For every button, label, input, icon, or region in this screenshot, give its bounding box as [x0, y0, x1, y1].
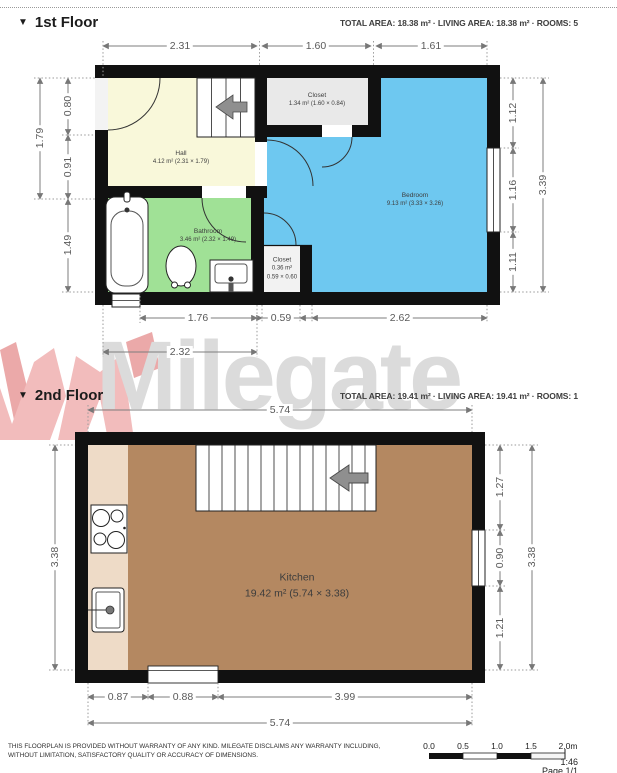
dim-label: 2.62 — [387, 312, 413, 324]
floor1-stats: TOTAL AREA: 18.38 m² · LIVING AREA: 18.3… — [340, 18, 578, 28]
floor2-stats: TOTAL AREA: 19.41 m² · LIVING AREA: 19.4… — [340, 391, 578, 401]
dim-label: 2.31 — [167, 40, 193, 52]
room-label-hall: Hall 4.12 m² (2.31 × 1.79) — [153, 149, 209, 167]
dim-label: 0.88 — [170, 691, 196, 703]
dim-label: 5.74 — [267, 717, 293, 729]
collapse-triangle-icon: ▼ — [18, 390, 28, 401]
page-number: Page 1/1 — [542, 766, 578, 773]
floor2-stairs — [196, 445, 376, 511]
dim-label: 0.91 — [62, 154, 74, 180]
room-label-closet: Closet 1.34 m² (1.60 × 0.84) — [289, 91, 345, 109]
collapse-triangle-icon: ▼ — [18, 17, 28, 28]
dim-label: 1.61 — [418, 40, 444, 52]
hall-floor — [108, 78, 255, 186]
kitchen-window — [472, 530, 485, 586]
dim-label: 1.76 — [185, 312, 211, 324]
stove — [91, 505, 127, 553]
closet-small-door-arc — [264, 213, 296, 245]
dim-label: 1.16 — [507, 177, 519, 203]
bathroom-small-window — [112, 294, 140, 307]
scale-tick-label: 1.5 — [525, 741, 537, 751]
floor1-plan — [34, 41, 549, 357]
disclaimer-text: THIS FLOORPLAN IS PROVIDED WITHOUT WARRA… — [8, 742, 380, 761]
disclaimer-line1: THIS FLOORPLAN IS PROVIDED WITHOUT WARRA… — [8, 742, 380, 751]
floor2-walls — [75, 432, 485, 683]
dim-label: 1.60 — [303, 40, 329, 52]
floor1-stairs — [197, 78, 255, 137]
dim-label: 0.87 — [105, 691, 131, 703]
dim-label: 0.90 — [494, 545, 506, 571]
page-top-dotted-line — [0, 7, 617, 8]
room-label-kitchen: Kitchen 19.42 m² (5.74 × 3.38) — [245, 571, 349, 602]
toilet — [166, 246, 196, 288]
dim-label: 3.38 — [49, 544, 61, 570]
dim-label: 3.38 — [526, 544, 538, 570]
floor2-extension-lines — [49, 405, 538, 727]
room-label-bathroom: Bathroom 3.46 m² (2.32 × 1.49) — [180, 227, 236, 245]
bathtub — [106, 192, 148, 293]
bathroom-sink — [210, 260, 253, 292]
kitchen-counter — [88, 445, 128, 670]
dim-label: 1.12 — [507, 100, 519, 126]
dim-label: 1.21 — [494, 615, 506, 641]
room-label-bedroom: Bedroom 9.13 m² (3.33 × 3.26) — [387, 191, 443, 209]
floor2-title: 2nd Floor — [35, 387, 103, 404]
scale-tick-label: 0.0 — [423, 741, 435, 751]
dim-label: 1.79 — [34, 125, 46, 151]
scale-tick-label: 1.0 — [491, 741, 503, 751]
dim-label: 3.39 — [537, 172, 549, 198]
floor1-extension-lines — [34, 41, 549, 357]
dim-label: 1.27 — [494, 474, 506, 500]
entry-door-arc — [108, 78, 160, 130]
kitchen-door-opening — [148, 666, 218, 683]
floor2-dim-lines — [55, 410, 532, 723]
room-label-closet-small: Closet 0.36 m² 0.59 × 0.60 — [267, 256, 297, 283]
dim-label: 3.99 — [332, 691, 358, 703]
scale-tick-label: 2.0m — [559, 741, 578, 751]
dim-label: 0.80 — [62, 93, 74, 119]
stairs-direction-arrow-icon — [216, 95, 247, 119]
dim-label: 2.32 — [167, 346, 193, 358]
dim-label: 1.49 — [62, 232, 74, 258]
bedroom-door-arc — [267, 140, 313, 186]
disclaimer-line2: WITHOUT LIMITATION, SATISFACTORY QUALITY… — [8, 751, 380, 760]
stairs-direction-arrow-icon — [330, 465, 368, 491]
closet-top-door-arc — [322, 137, 352, 167]
bedroom-window — [487, 148, 500, 232]
dim-label: 0.59 — [268, 312, 294, 324]
entry-door-opening — [95, 78, 108, 130]
milegate-watermark-text: Milegate — [96, 318, 617, 446]
kitchen-sink — [88, 588, 124, 632]
floor2-section-header: ▼2nd Floor — [18, 387, 103, 404]
scale-tick-label: 0.5 — [457, 741, 469, 751]
floor1-section-header: ▼1st Floor — [18, 14, 98, 31]
bedroom-floor — [381, 78, 487, 138]
dim-label: 5.74 — [267, 404, 293, 416]
floorplan-page: Milegate — [0, 0, 617, 773]
floor1-title: 1st Floor — [35, 14, 98, 31]
floor2-plan — [49, 405, 538, 727]
dim-label: 1.11 — [507, 249, 519, 275]
kitchen-floor — [88, 445, 472, 670]
